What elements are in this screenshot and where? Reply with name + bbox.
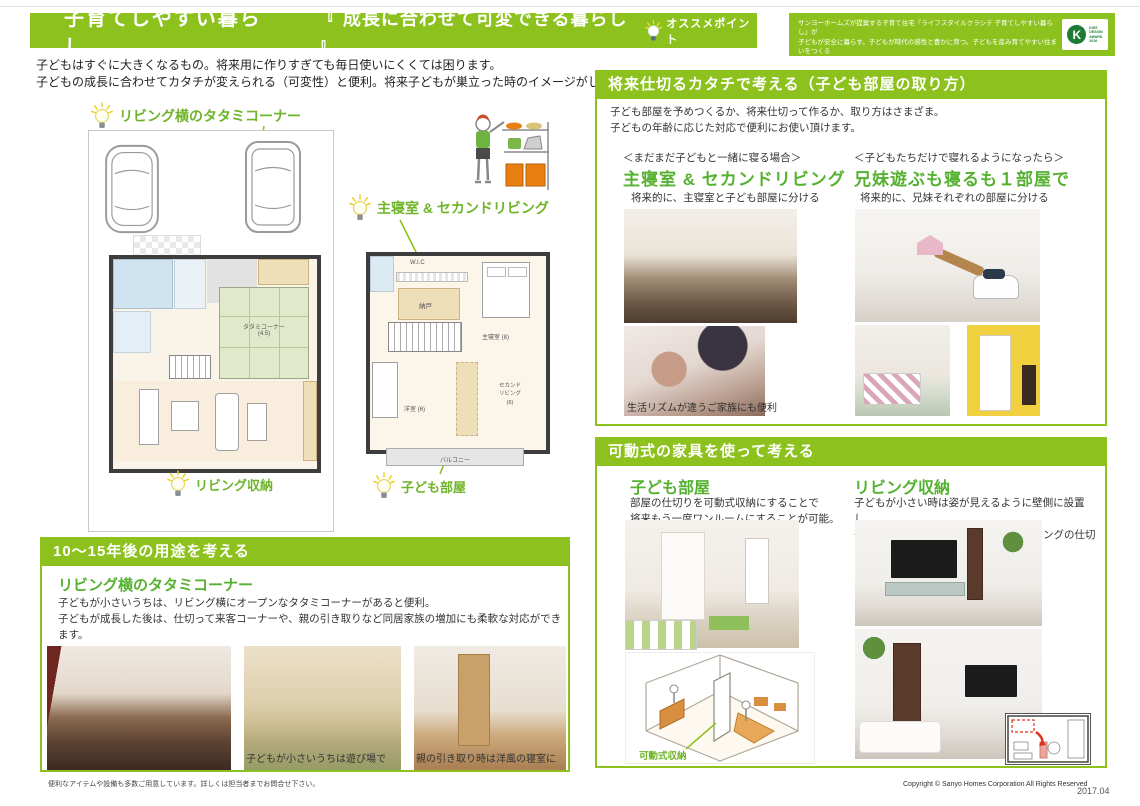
car-icon xyxy=(227,139,319,235)
section-partition: 将来仕切るカタチで考える（子ども部屋の取り方） 子ども部屋を予めつくるか、将来仕… xyxy=(595,70,1107,428)
playhouse xyxy=(917,235,943,255)
lightbulb-icon xyxy=(90,102,114,130)
white-sofa xyxy=(859,721,941,753)
furniture-left-title: 子ども部屋 xyxy=(630,474,710,498)
award-note-line3: 提案が優れたものとして評価され、2016年キッズデザイン賞を受賞しました。 xyxy=(798,57,1060,66)
lightbulb-icon xyxy=(644,19,663,43)
tatami-corner-room: タタミコーナー (4.5) xyxy=(219,287,309,379)
furniture-left-body-line1: 部屋の仕切りを可動式収納にすることで xyxy=(630,496,839,512)
plant xyxy=(861,635,887,661)
tatami-room-label-line2: (4.5) xyxy=(234,331,294,337)
western-room-label: 洋室 (6) xyxy=(404,404,425,413)
partition-body-line1: 子ども部屋を予めつくるか、将来仕切って作るか、取り方はさまざま。 xyxy=(610,105,944,121)
partition-left-note: 将来的に、主寝室と子ども部屋に分ける xyxy=(631,191,820,207)
stairs xyxy=(169,355,211,379)
piano xyxy=(1022,365,1036,405)
striped-bed xyxy=(625,620,697,650)
tatami-room-label-line1: タタミコーナー xyxy=(234,322,294,331)
living-storage-strip xyxy=(303,381,317,461)
plan1-walls: タタミコーナー (4.5) LDK(16) xyxy=(109,255,321,473)
brown-door xyxy=(893,643,921,729)
section-furniture: 可動式の家具を使って考える 子ども部屋 部屋の仕切りを可動式収納にすることで 将… xyxy=(595,437,1107,770)
bathroom-2f xyxy=(370,256,394,292)
toilet xyxy=(174,259,206,309)
kids-design-award-logo: K KIDS DESIGN AWARD 2016 xyxy=(1062,19,1108,50)
partition-body-line2: 子どもの年齢に応じた対応で便利にお使い頂けます。 xyxy=(610,121,944,137)
label-master-bedroom-text: 主寝室 & セカンドリビング xyxy=(377,198,549,218)
green-rug xyxy=(709,616,749,630)
award-note-line2: 子どもが安全に暮らす。子どもが時代の感性と豊かに育つ。子どもを産み育てやすい住ま… xyxy=(798,38,1060,57)
low-table xyxy=(247,403,267,441)
recommend-badge: オススメポイント xyxy=(666,15,757,47)
usage-caption-3: 親の引き取り時は洋風の寝室に xyxy=(416,750,556,765)
label-living-storage-text: リビング収納 xyxy=(195,475,273,494)
award-note-line1: サンヨーホームズが提案する子育て住宅『ライフスタイルクラシテ 子育てしやすい暮ら… xyxy=(798,19,1060,38)
photo-second-living xyxy=(624,209,797,323)
kids-design-award-text: KIDS DESIGN AWARD 2016 xyxy=(1089,26,1102,43)
brochure-page: 子育てしやすい暮らし 『 成長に合わせて可変できる暮らし 』 オススメポイント … xyxy=(0,0,1140,806)
section-usage-header: 10〜15年後の用途を考える xyxy=(40,537,570,566)
white-door xyxy=(979,335,1011,411)
label-living-storage: リビング収納 xyxy=(166,470,273,498)
award-note: サンヨーホームズが提案する子育て住宅『ライフスタイルクラシテ 子育てしやすい暮ら… xyxy=(798,19,1060,66)
second-living-label-line3: (6) xyxy=(490,399,530,407)
footer-date: 2017.04 xyxy=(1077,786,1110,796)
partition-right-title: 兄妹遊ぶも寝るも１部屋で xyxy=(854,165,1070,190)
tv-board xyxy=(885,582,965,596)
partition-body: 子ども部屋を予めつくるか、将来仕切って作るか、取り方はさまざま。 子どもの年齢に… xyxy=(610,105,944,137)
master-bedroom-label: 主寝室 (8) xyxy=(482,332,509,341)
balcony: バルコニー xyxy=(386,448,524,466)
closet xyxy=(258,259,309,285)
label-kids-room-text: 子ども部屋 xyxy=(401,477,466,496)
section-furniture-body: 子ども部屋 部屋の仕切りを可動式収納にすることで 将来もう一度ワンルームにするこ… xyxy=(595,466,1107,768)
plan2-walls: W.I.C 納戸 主寝室 (8) 洋室 (6) セカンド リビング (6) xyxy=(366,252,550,454)
lightbulb-icon xyxy=(372,472,396,500)
second-living-label-line2: リビング xyxy=(490,390,530,398)
stairs-2f xyxy=(388,322,462,352)
boy-shelf-illustration xyxy=(452,102,552,197)
page-title: 子育てしやすい暮らし xyxy=(64,2,272,60)
washroom xyxy=(113,311,151,353)
label-master-bedroom: 主寝室 & セカンドリビング xyxy=(348,194,549,222)
photo-living-tv-wall xyxy=(855,520,1042,626)
nando-room: 納戸 xyxy=(398,288,460,320)
award-line: 2016 xyxy=(1089,39,1102,43)
plant xyxy=(1001,530,1025,554)
toy-car-roof xyxy=(983,269,1005,279)
lightbulb-icon xyxy=(348,194,372,222)
partition-left-caption: 生活リズムが違うご家族にも便利 xyxy=(627,399,777,414)
photo-kids-bedroom xyxy=(855,325,950,416)
second-living-label: セカンド リビング (6) xyxy=(490,382,530,407)
pillow xyxy=(508,267,527,277)
bedroom-door xyxy=(458,654,490,746)
second-living-label-line1: セカンド xyxy=(490,382,530,390)
wic-hatch xyxy=(396,272,468,282)
movable-closet-white xyxy=(661,532,705,620)
floorplan-2f: W.I.C 納戸 主寝室 (8) 洋室 (6) セカンド リビング (6) バル… xyxy=(356,238,552,470)
western-bed xyxy=(372,362,398,418)
header-bar: 子育てしやすい暮らし 『 成長に合わせて可変できる暮らし 』 オススメポイント xyxy=(30,13,757,48)
photo-kids-room-movable xyxy=(625,520,799,648)
section-partition-body: 子ども部屋を予めつくるか、将来仕切って作るか、取り方はさまざま。 子どもの年齢に… xyxy=(595,99,1107,426)
car-icon xyxy=(103,143,161,235)
kids-bed xyxy=(863,373,921,405)
master-bed xyxy=(482,262,530,318)
balcony-label: バルコニー xyxy=(440,458,470,464)
furniture-right-title: リビング収納 xyxy=(854,474,950,498)
usage-caption-2: 子どもが小さいうちは遊び場で xyxy=(246,750,386,765)
tatami-room-label: タタミコーナー (4.5) xyxy=(234,322,294,337)
kids-design-award-mark-icon: K xyxy=(1067,25,1086,44)
usage-body-line1: 子どもが小さいうちは、リビング横にオープンなタタミコーナーがあると便利。 xyxy=(58,596,568,612)
partition-right-note: 将来的に、兄妹それぞれの部屋に分ける xyxy=(860,191,1049,207)
label-kids-room: 子ども部屋 xyxy=(372,472,466,500)
sofa xyxy=(215,393,239,451)
usage-heading: リビング横のタタミコーナー xyxy=(58,574,253,595)
section-partition-header: 将来仕切るカタチで考える（子ども部屋の取り方） xyxy=(595,70,1107,99)
page-subtitle: 『 成長に合わせて可変できる暮らし 』 xyxy=(318,5,634,57)
bathroom xyxy=(113,259,173,309)
photo-living-room xyxy=(47,646,231,770)
partition-left-title: 主寝室 & セカンドリビング xyxy=(623,165,846,190)
nando-label: 納戸 xyxy=(419,300,432,310)
kitchen-counter xyxy=(139,389,159,445)
wic-label: W.I.C xyxy=(410,260,425,266)
floorplan-inset xyxy=(1005,713,1091,765)
dark-partition xyxy=(967,528,983,600)
pillow xyxy=(487,267,506,277)
footer-copyright: Copyright © Sanyo Homes Corporation All … xyxy=(903,781,1088,788)
movable-closet xyxy=(456,362,478,436)
furniture-left-caption: 可動式収納 xyxy=(639,748,687,762)
footer-note: 便利なアイテムや設備も多数ご用意しています。詳しくは担当者までお問合せ下さい。 xyxy=(48,779,319,789)
section-usage: 10〜15年後の用途を考える リビング横のタタミコーナー 子どもが小さいうちは、… xyxy=(40,537,570,774)
tv-screen xyxy=(965,665,1017,697)
dining-table xyxy=(171,401,199,431)
section-furniture-header: 可動式の家具を使って考える xyxy=(595,437,1107,466)
lightbulb-icon xyxy=(166,470,190,498)
usage-body-line2: 子どもが成長した後は、仕切って来客コーナーや、親の引き取りなど同居家族の増加にも… xyxy=(58,612,568,644)
section-usage-body: リビング横のタタミコーナー 子どもが小さいうちは、リビング横にオープンなタタミコ… xyxy=(40,566,570,772)
usage-body: 子どもが小さいうちは、リビング横にオープンなタタミコーナーがあると便利。 子ども… xyxy=(58,596,568,643)
photo-kids-playroom xyxy=(855,209,1040,322)
room-door xyxy=(745,538,769,604)
label-tatami-corner: リビング横のタタミコーナー xyxy=(90,102,301,130)
tv-screen xyxy=(891,540,957,578)
label-tatami-corner-text: リビング横のタタミコーナー xyxy=(119,106,301,126)
photo-yellow-room xyxy=(967,325,1040,416)
award-block: サンヨーホームズが提案する子育て住宅『ライフスタイルクラシテ 子育てしやすい暮ら… xyxy=(789,13,1115,56)
